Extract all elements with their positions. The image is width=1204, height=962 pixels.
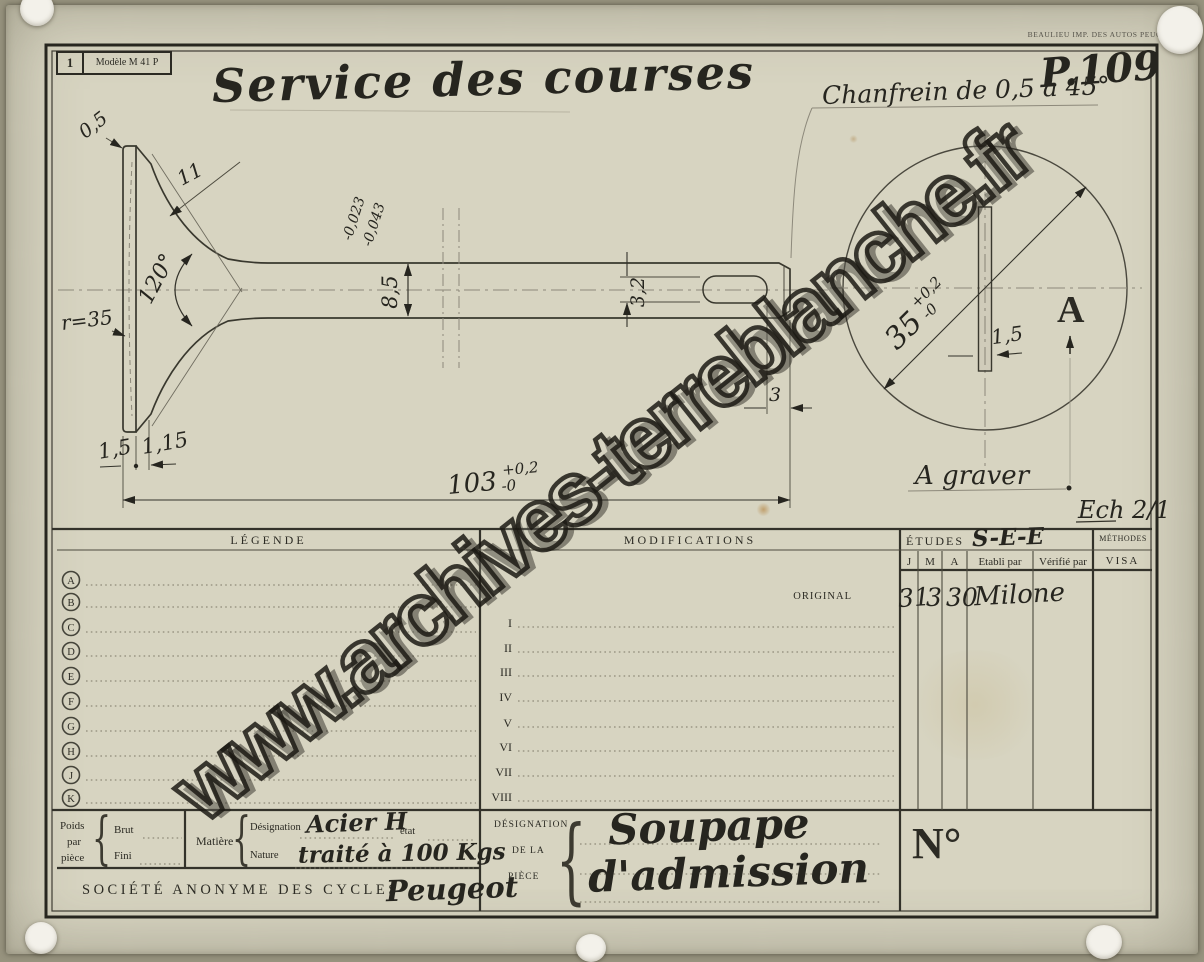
scale-note: Ech 2/1 <box>1077 496 1171 524</box>
scanned-technical-drawing: { "meta": { "stamp_number": "1", "model_… <box>0 0 1204 960</box>
nature-value: traité à 100 Kgs <box>298 838 506 869</box>
legend-letter: K <box>67 794 75 805</box>
legend-letter: E <box>68 672 74 683</box>
legend-letter: D <box>67 647 75 658</box>
slot-height-dim: 3,2 <box>627 277 649 307</box>
brace-icon: { <box>556 814 587 908</box>
view-a-label: A <box>1057 289 1085 331</box>
seat-angle-dim: 120° <box>134 250 181 309</box>
modification-numeral: VI <box>499 740 512 754</box>
engrave-note: A graver <box>913 461 1031 491</box>
slot-width-dim: 1,5 <box>990 321 1025 349</box>
col-a: A <box>942 556 967 568</box>
break-lines <box>443 208 459 368</box>
modification-numeral: II <box>504 641 512 655</box>
legend-letter: C <box>67 623 74 634</box>
piece-label-2: DE LA <box>512 846 545 856</box>
col-etabli: Etabli par <box>967 556 1033 568</box>
legend-letter: H <box>67 747 75 758</box>
engrave-dot <box>1067 486 1072 491</box>
brand-name: Peugeot <box>385 870 518 909</box>
stem-dia-dim: 8,5 <box>378 275 402 308</box>
edge-leader <box>106 138 122 148</box>
etudes-header: ÉTUDES <box>906 534 964 549</box>
model-label: Modèle M 41 P <box>83 57 171 68</box>
head-t1-dim: 1,5 <box>96 434 133 463</box>
modification-numeral: VII <box>495 765 512 779</box>
mounting-tab <box>576 934 606 962</box>
col-j: J <box>900 556 918 568</box>
original-label: ORIGINAL <box>762 591 852 602</box>
modification-numeral: VIII <box>491 790 512 804</box>
legend-letter: J <box>69 771 73 782</box>
head-t2-dim: 1,15 <box>140 427 190 459</box>
stamp-number: 1 <box>57 55 83 71</box>
chamfer-leader <box>791 108 812 258</box>
mounting-tab <box>25 922 57 954</box>
legend-letter: G <box>67 722 75 733</box>
face-radius-dim: r=35 <box>60 305 114 335</box>
original-month: 3 <box>926 583 942 612</box>
legend-letter: B <box>67 598 74 609</box>
etat-label: état <box>400 826 415 837</box>
col-verifie: Vérifié par <box>1033 556 1093 568</box>
piece-value-2: d'admission <box>587 843 870 902</box>
legende-header: LÉGENDE <box>57 533 480 548</box>
etudes-note: S-E-E <box>972 523 1045 552</box>
modification-numeral: III <box>500 665 512 679</box>
modification-numeral: V <box>503 716 512 730</box>
methodes-header: MÉTHODES <box>1094 534 1152 543</box>
modification-numeral: I <box>508 616 512 630</box>
piece-label-3: PIÈCE <box>508 872 539 882</box>
modification-numerals: I II III IV V VI VII VIII <box>491 616 512 804</box>
numero-label: N° <box>912 818 961 869</box>
valve-head-sphere-dash <box>129 162 132 416</box>
modification-numeral: IV <box>499 690 512 704</box>
mounting-tab <box>1157 6 1203 54</box>
head-thickness-dot <box>134 464 138 468</box>
col-m: M <box>918 556 942 568</box>
original-author: Milone <box>973 578 1065 613</box>
nature-label: Nature <box>250 850 279 861</box>
legend-letter: F <box>68 697 74 708</box>
visa-header: VISA <box>1093 555 1152 567</box>
designation-label: Désignation <box>250 822 301 833</box>
legend-letter: A <box>67 576 75 587</box>
poids-label-3: pièce <box>61 852 84 864</box>
seat-width-dim: 11 <box>173 157 207 190</box>
mounting-tab <box>1086 925 1122 959</box>
designation-value: Acier H <box>306 806 408 839</box>
